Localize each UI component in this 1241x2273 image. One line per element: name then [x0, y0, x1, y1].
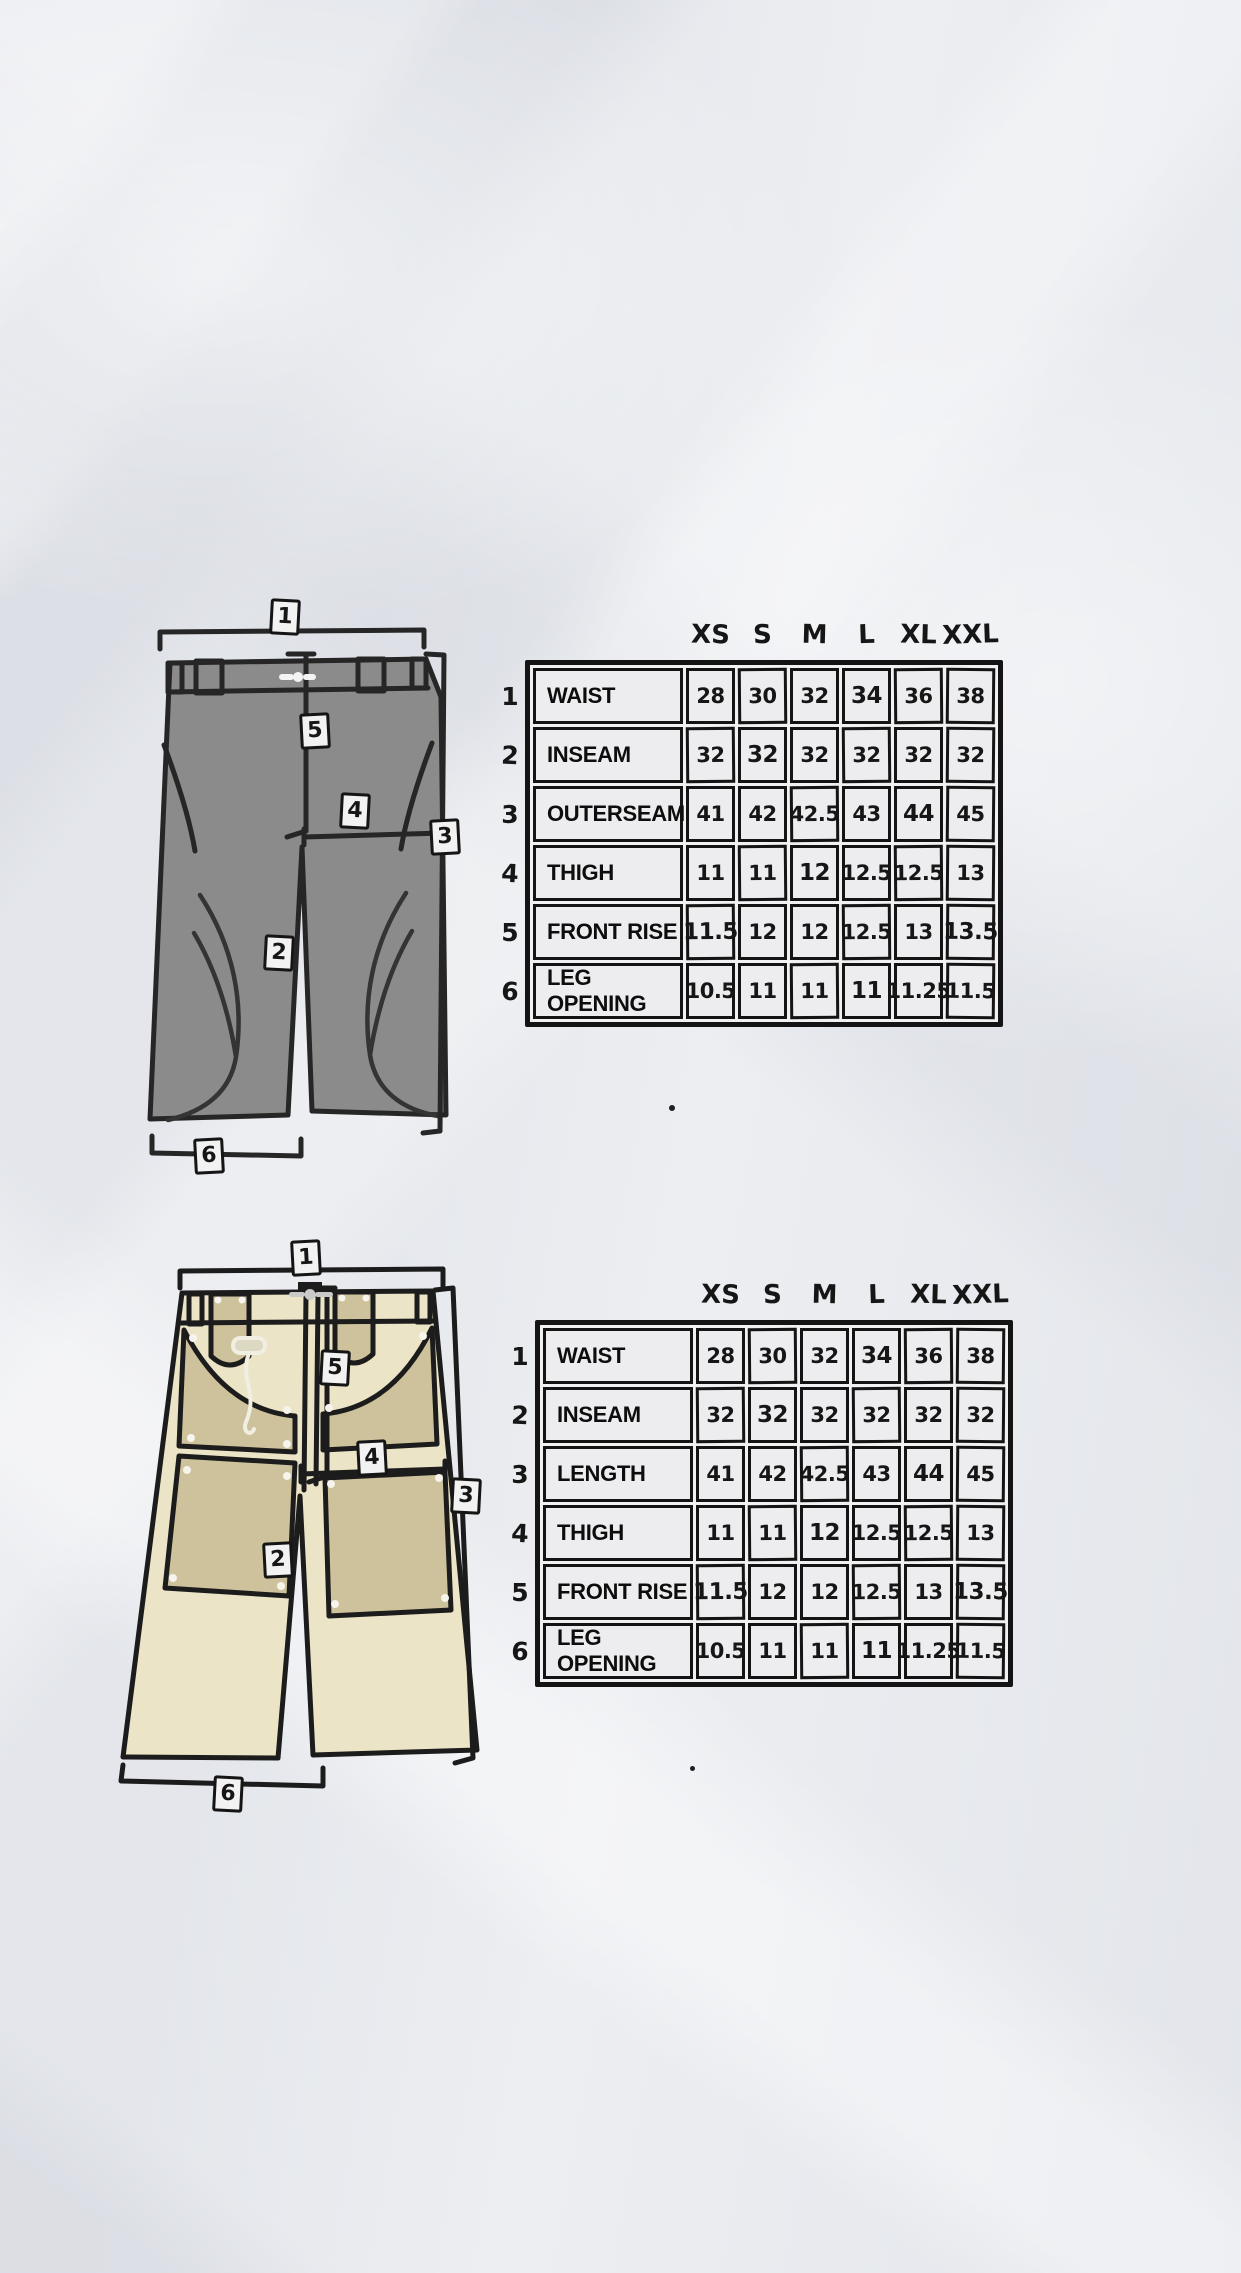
cell: 11: [748, 1505, 797, 1561]
size-col-s: S: [747, 1275, 797, 1315]
row-label: LEG OPENING: [543, 1623, 693, 1679]
cell: 42: [738, 786, 787, 842]
cell: 32: [800, 1387, 849, 1443]
row-number-column: 1 2 3 4 5 6: [505, 1320, 535, 1687]
row-number: 3: [495, 786, 525, 842]
row-number: 1: [495, 668, 525, 724]
cell: 30: [738, 668, 787, 724]
size-col-xl: XL: [904, 1275, 954, 1314]
cell: 32: [800, 1328, 849, 1384]
cell: 12: [800, 1564, 849, 1620]
cell: 12.5: [894, 845, 943, 901]
spacer: [542, 1273, 693, 1316]
cell: 11: [852, 1623, 901, 1679]
cell: 12: [800, 1505, 849, 1561]
marker-front-rise: 5: [299, 712, 331, 750]
cell: 42.5: [800, 1446, 849, 1502]
marker-waist: 1: [290, 1239, 322, 1277]
marker-thigh: 4: [339, 792, 371, 830]
size-col-l: L: [851, 1275, 901, 1315]
pants-size-table: XS S M L XL XXL 1 2 3 4 5 6 WAIST 28 30 …: [495, 616, 1003, 1027]
cell: 43: [842, 786, 891, 842]
row-label: LENGTH: [543, 1446, 693, 1502]
table-frame: WAIST 28 30 32 34 36 38 INSEAM 32 32 32 …: [535, 1320, 1013, 1687]
cell: 13.5: [946, 904, 996, 961]
row-number: 6: [504, 1622, 537, 1679]
cell: 11.25: [904, 1623, 953, 1679]
cell: 32: [790, 727, 839, 783]
cell: 13.5: [956, 1564, 1006, 1621]
cell: 32: [748, 1387, 797, 1443]
cell: 43: [852, 1446, 901, 1502]
row-label: INSEAM: [533, 727, 683, 783]
cell: 11.5: [956, 1623, 1006, 1680]
cell: 12.5: [842, 904, 891, 960]
size-col-l: L: [841, 615, 891, 655]
size-col-xl: XL: [894, 615, 944, 654]
marker-length: 3: [450, 1477, 482, 1515]
cell: 41: [686, 786, 735, 842]
size-header-row: XS S M L XL XXL: [533, 616, 1003, 654]
cargo-panel-right: [325, 1472, 451, 1616]
cell: 32: [956, 1387, 1006, 1444]
row-number: 4: [494, 844, 527, 901]
size-chart-sheet: 1 5 4 3 2 6 XS S M L XL XXL 1 2 3 4 5 6: [0, 0, 1241, 2273]
cell: 44: [894, 786, 943, 842]
cell: 12: [738, 904, 787, 960]
row-label: FRONT RISE: [543, 1564, 693, 1620]
cell: 10.5: [696, 1623, 745, 1679]
marker-leg-opening: 6: [193, 1137, 225, 1175]
cell: 32: [904, 1387, 953, 1443]
size-col-xxl: XXL: [955, 1275, 1005, 1315]
cell: 38: [956, 1328, 1006, 1385]
marker-outerseam: 3: [429, 818, 461, 856]
cell: 28: [696, 1328, 745, 1384]
cell: 38: [946, 668, 996, 725]
cell: 11: [800, 1623, 849, 1679]
cell: 34: [842, 668, 891, 724]
marker-waist: 1: [269, 598, 301, 636]
row-label: OUTERSEAM: [533, 786, 683, 842]
row-label: THIGH: [533, 845, 683, 901]
row-label: LEG OPENING: [533, 963, 683, 1019]
cell: 28: [686, 668, 735, 724]
cell: 32: [946, 727, 996, 784]
cell: 32: [842, 727, 891, 783]
cell: 30: [748, 1328, 797, 1384]
cell: 34: [852, 1328, 901, 1384]
row-label: WAIST: [543, 1328, 693, 1384]
cell: 42: [748, 1446, 797, 1502]
size-col-xxl: XXL: [945, 615, 995, 655]
row-label: WAIST: [533, 668, 683, 724]
cell: 42.5: [790, 786, 839, 842]
cell: 11: [842, 963, 891, 1019]
khaki-pants-drawing: [73, 1238, 493, 1816]
size-col-xs: XS: [686, 615, 736, 654]
gray-pants-drawing: [138, 597, 468, 1177]
row-number: 5: [495, 904, 525, 960]
row-number: 5: [505, 1564, 535, 1620]
cell: 36: [894, 668, 943, 724]
cell: 12: [790, 904, 839, 960]
pants-body: [150, 659, 446, 1119]
table-frame: WAIST 28 30 32 34 36 38 INSEAM 32 32 32 …: [525, 660, 1003, 1027]
row-number: 6: [494, 962, 527, 1019]
length-size-table: XS S M L XL XXL 1 2 3 4 5 6 WAIST 28 30 …: [505, 1276, 1013, 1687]
cell: 10.5: [686, 963, 735, 1019]
row-number: 4: [504, 1504, 537, 1561]
cell: 12.5: [904, 1505, 953, 1561]
ink-dot: [669, 1105, 675, 1111]
cell: 36: [904, 1328, 953, 1384]
cell: 11: [696, 1505, 745, 1561]
marker-inseam: 2: [263, 934, 295, 972]
cell: 11: [748, 1623, 797, 1679]
cell: 11.5: [696, 1564, 745, 1620]
row-number: 3: [505, 1446, 535, 1502]
cell: 45: [946, 786, 996, 843]
row-number: 2: [494, 726, 527, 783]
ink-dot: [690, 1766, 695, 1771]
row-label: INSEAM: [543, 1387, 693, 1443]
gray-pants-figure: 1 5 4 3 2 6: [138, 597, 468, 1177]
size-col-xs: XS: [696, 1275, 746, 1314]
cell: 45: [956, 1446, 1006, 1503]
cell: 13: [904, 1564, 953, 1620]
size-col-m: M: [800, 1275, 850, 1314]
size-col-m: M: [790, 615, 840, 654]
leg-opening-bracket: [152, 1136, 301, 1156]
cell: 11: [790, 963, 839, 1019]
cell: 13: [894, 904, 943, 960]
size-header-row: XS S M L XL XXL: [543, 1276, 1013, 1314]
cell: 41: [696, 1446, 745, 1502]
cell: 12: [748, 1564, 797, 1620]
cell: 32: [790, 668, 839, 724]
cell: 12.5: [852, 1564, 901, 1620]
cell: 11: [738, 963, 787, 1019]
cell: 32: [696, 1387, 745, 1443]
cell: 32: [894, 727, 943, 783]
marker-thigh: 4: [356, 1439, 388, 1477]
cell: 32: [738, 727, 787, 783]
cell: 32: [852, 1387, 901, 1443]
cell: 13: [946, 845, 996, 902]
khaki-pants-figure: 1 5 4 3 2 6: [73, 1238, 493, 1816]
cell: 12.5: [842, 845, 891, 901]
cell: 11.5: [946, 963, 996, 1020]
cell: 12: [790, 845, 839, 901]
cell: 13: [956, 1505, 1006, 1562]
row-number: 1: [505, 1328, 535, 1384]
cell: 12.5: [852, 1505, 901, 1561]
cell: 11.25: [894, 963, 943, 1019]
row-number: 2: [504, 1386, 537, 1443]
size-col-s: S: [737, 615, 787, 655]
row-label: FRONT RISE: [533, 904, 683, 960]
spacer: [532, 613, 683, 656]
marker-leg-opening: 6: [212, 1775, 244, 1813]
cell: 11: [686, 845, 735, 901]
cell: 32: [686, 727, 735, 783]
row-label: THIGH: [543, 1505, 693, 1561]
cell: 11.5: [686, 904, 735, 960]
cell: 11: [738, 845, 787, 901]
row-number-column: 1 2 3 4 5 6: [495, 660, 525, 1027]
marker-inseam: 2: [262, 1541, 294, 1579]
marker-front-rise: 5: [319, 1349, 351, 1387]
cell: 44: [904, 1446, 953, 1502]
